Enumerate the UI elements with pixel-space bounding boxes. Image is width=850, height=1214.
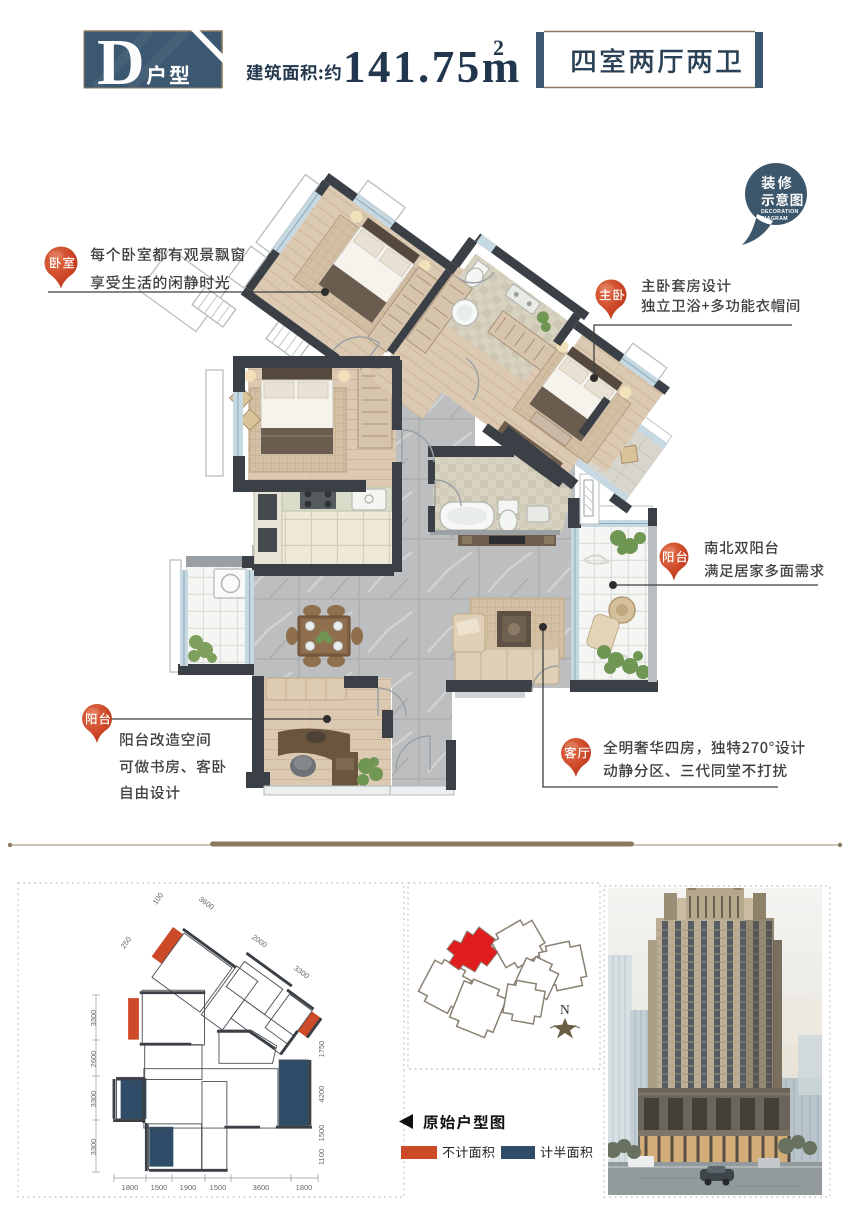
svg-text:3300: 3300 [89,1139,98,1156]
svg-text:2: 2 [493,35,504,60]
svg-text:1500: 1500 [151,1183,168,1192]
svg-text:1500: 1500 [210,1183,227,1192]
svg-text:1800: 1800 [296,1183,313,1192]
svg-text:DIAGRAM: DIAGRAM [761,216,788,222]
svg-text:3300: 3300 [292,963,311,980]
svg-text:D: D [97,26,145,99]
svg-text:3300: 3300 [89,1091,98,1108]
svg-text:100: 100 [151,891,166,906]
svg-text:3600: 3600 [253,1183,270,1192]
svg-text:N: N [560,1002,570,1017]
svg-text:4200: 4200 [317,1086,326,1103]
svg-text:1750: 1750 [317,1041,326,1058]
svg-text:3600: 3600 [197,894,216,911]
svg-text:DECORATION: DECORATION [761,209,799,215]
svg-text:1900: 1900 [180,1183,197,1192]
svg-text:3300: 3300 [89,1010,98,1027]
svg-text:1100: 1100 [317,1149,326,1165]
svg-text:250: 250 [119,935,134,950]
svg-text:1500: 1500 [317,1125,326,1142]
svg-text:2000: 2000 [250,932,269,949]
svg-text:1800: 1800 [122,1183,139,1192]
svg-text:2600: 2600 [89,1051,98,1068]
